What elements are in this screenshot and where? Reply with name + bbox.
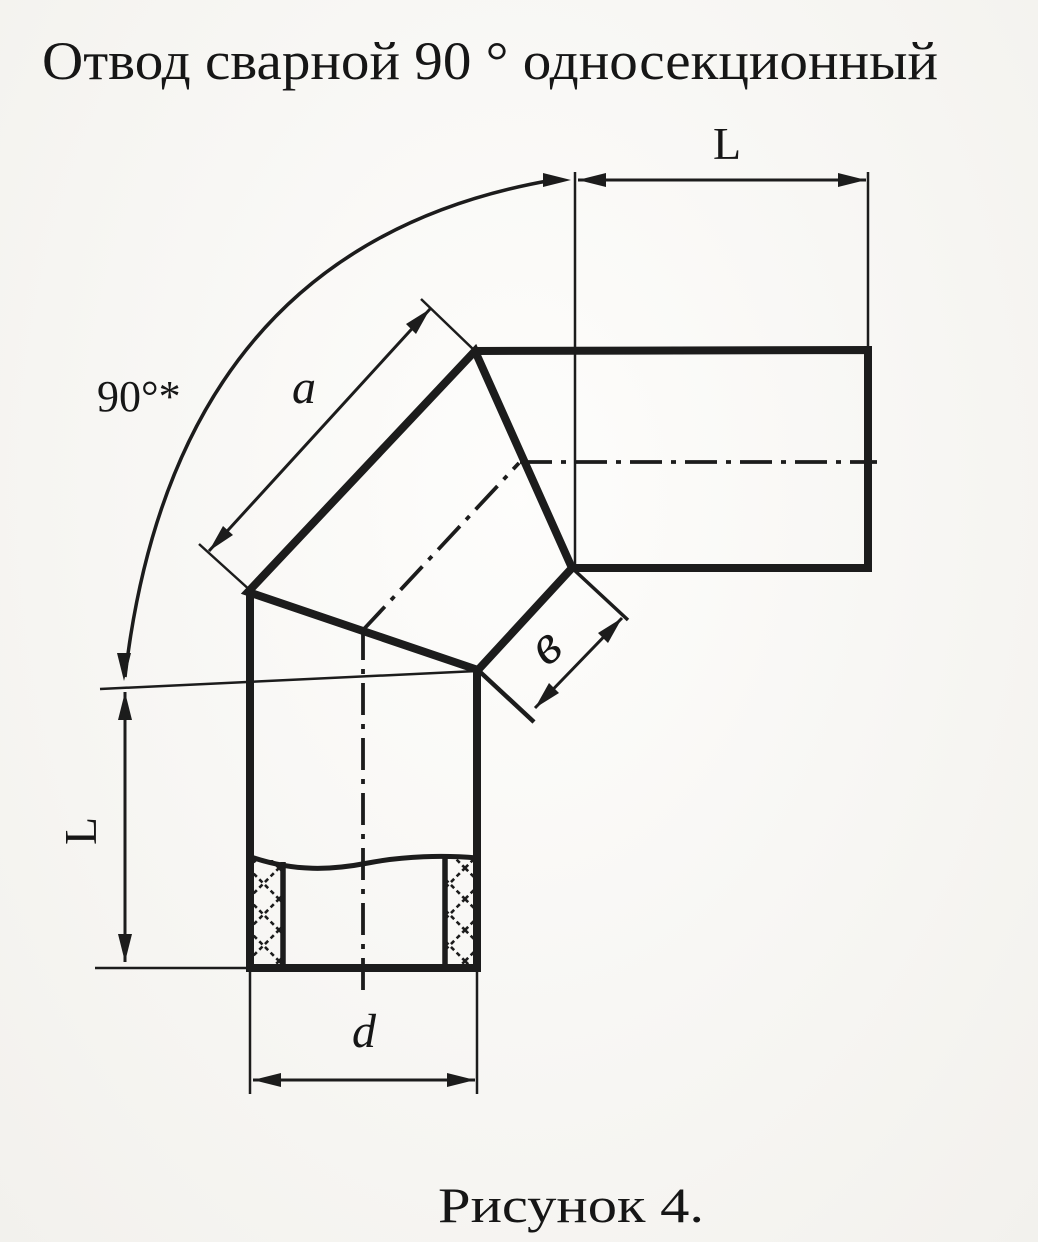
arrowhead-d-left [253,1073,281,1087]
arrowhead-L-top-left [578,173,606,187]
elbow-technical-drawing: Отвод сварной 90 ° односекционный L 90°*… [0,0,1038,1242]
arrowhead-L-left-bottom [118,934,132,962]
dimension-lines [125,180,866,1080]
horizontal-pipe-outline [475,350,868,568]
label-diameter: d [352,1005,377,1058]
arrowhead-L-left-top [118,692,132,720]
arrowheads [117,173,866,1087]
centerlines [363,462,877,991]
extension-line-a-lower [199,544,252,592]
hatch-band-right [445,857,477,968]
label-length-top: L [713,118,741,169]
arrowhead-d-right [447,1073,475,1087]
scanned-drawing-page: Отвод сварной 90 ° односекционный L 90°*… [0,0,1038,1242]
centerline-gore-diagonal [363,463,519,630]
extension-line-left-slanted [100,671,477,689]
label-segment-side: a [292,361,316,414]
extension-lines [95,172,868,1094]
label-joint-width: в [516,614,573,678]
label-angle: 90°* [97,372,181,421]
figure-caption: Рисунок 4. [438,1177,704,1233]
extension-line-v-upper [572,568,628,620]
extension-line-v-lower [478,670,534,722]
arrowhead-arc-bottom [117,653,131,681]
drawing-title: Отвод сварной 90 ° односекционный [42,31,938,91]
arrowhead-L-top-right [838,173,866,187]
arrowhead-arc-top [543,173,571,187]
extension-line-a-upper [421,299,475,351]
hatch-band-left [251,860,283,968]
label-length-left: L [55,817,106,845]
angle-arc-90deg [125,180,553,677]
